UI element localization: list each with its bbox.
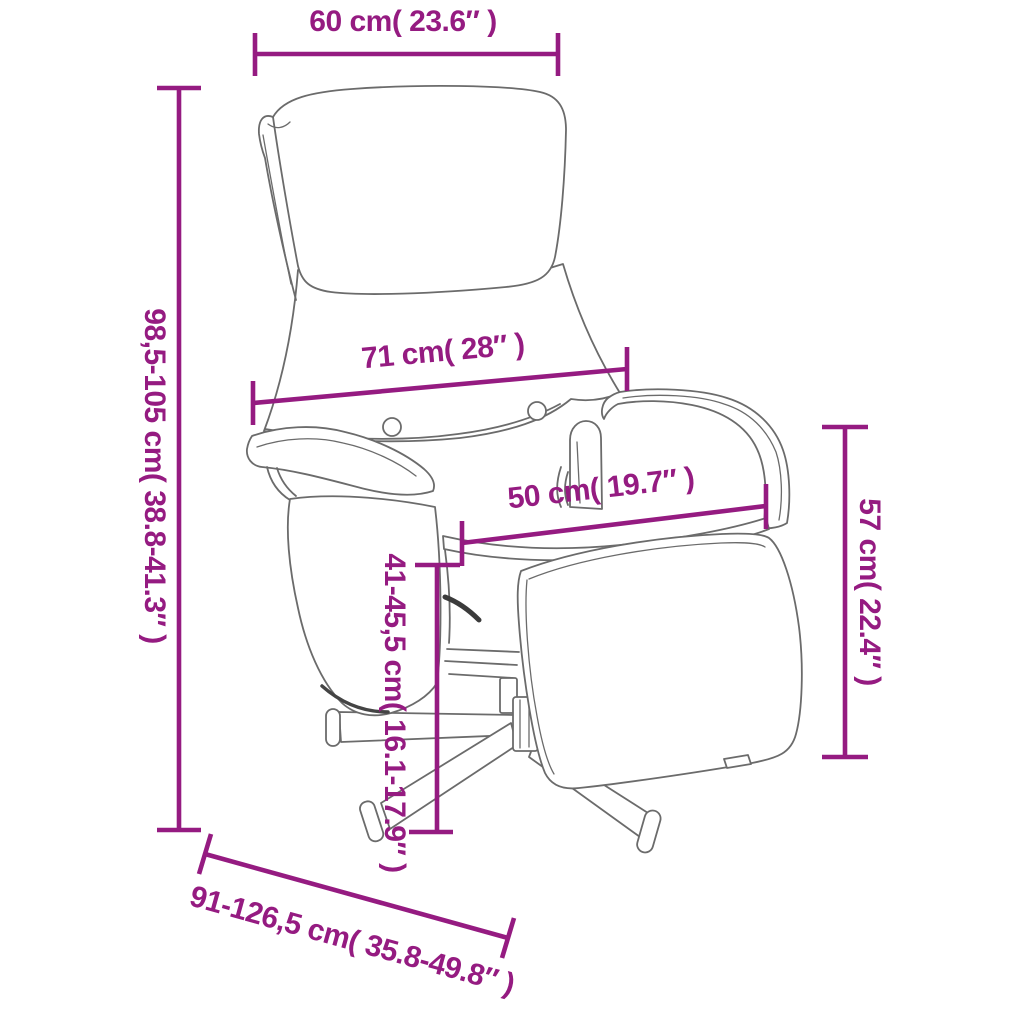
- tufting-button: [528, 402, 546, 420]
- dimension-label-armrest-height: 57 cm( 22.4″ ): [854, 498, 884, 685]
- underseat-frame: [445, 649, 519, 713]
- dimension-headrest-width: [255, 33, 558, 76]
- chair-drawing: [247, 86, 802, 854]
- dimension-diagram: 60 cm( 23.6″ ) 98,5-105 cm( 38.8-41.3″ )…: [0, 0, 1024, 1024]
- side-panel: [288, 496, 441, 715]
- dimension-label-headrest-width: 60 cm( 23.6″ ): [309, 7, 496, 37]
- dimension-label-seat-height: 41-45,5 cm( 16.1-17.9″ ): [379, 553, 409, 872]
- footrest: [518, 534, 802, 789]
- dimension-label-total-height: 98,5-105 cm( 38.8-41.3″ ): [139, 308, 169, 643]
- foot-back-left: [326, 709, 340, 746]
- tufting-button: [383, 418, 401, 436]
- headrest-cushion: [273, 86, 566, 294]
